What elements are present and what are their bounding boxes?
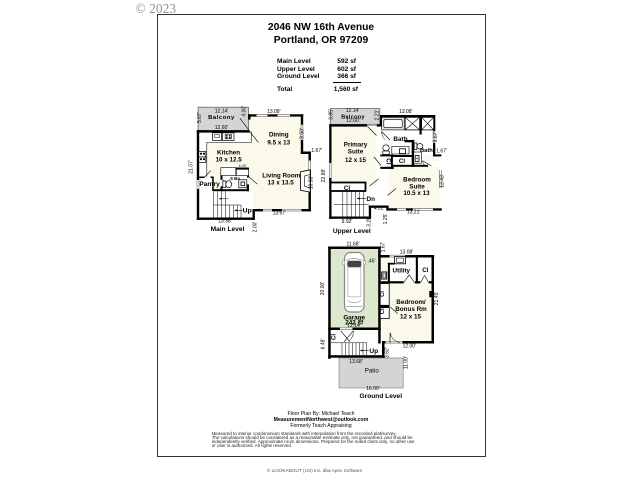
svg-text:Dn: Dn	[367, 196, 376, 203]
svg-text:Pantry: Pantry	[199, 181, 220, 188]
svg-text:Main Level: Main Level	[211, 226, 245, 233]
svg-text:2.21': 2.21'	[374, 110, 380, 121]
svg-text:1.25': 1.25'	[383, 214, 389, 225]
svg-text:12.60': 12.60'	[346, 118, 360, 124]
svg-text:13.08': 13.08'	[400, 249, 414, 255]
svg-text:11.00': 11.00'	[404, 356, 410, 369]
svg-text:Bedroom/: Bedroom/	[396, 299, 426, 306]
svg-text:13.98': 13.98'	[309, 176, 315, 190]
svg-text:1.67': 1.67'	[436, 148, 447, 154]
svg-text:1.67': 1.67'	[311, 148, 322, 154]
svg-text:12.14': 12.14'	[346, 108, 360, 114]
svg-text:Up: Up	[243, 207, 252, 214]
svg-text:Bedroom: Bedroom	[403, 176, 431, 183]
svg-text:13.43': 13.43'	[440, 174, 446, 188]
svg-text:13.58': 13.58'	[218, 219, 232, 225]
svg-text:Ground Level: Ground Level	[360, 393, 403, 400]
svg-text:Cl: Cl	[380, 308, 386, 314]
svg-text:4.22': 4.22'	[374, 205, 385, 211]
svg-text:Upper Level: Upper Level	[333, 228, 371, 235]
svg-text:Bath: Bath	[420, 148, 433, 154]
svg-text:4.00': 4.00'	[238, 164, 246, 168]
svg-text:3.25': 3.25'	[367, 216, 373, 227]
svg-text:Balcony: Balcony	[208, 115, 235, 121]
svg-text:10 x 12.5: 10 x 12.5	[215, 156, 242, 163]
svg-text:9.92': 9.92'	[342, 219, 353, 225]
svg-text:Dining: Dining	[269, 132, 289, 139]
svg-text:22.88': 22.88'	[321, 169, 327, 183]
svg-text:21.07': 21.07'	[189, 160, 195, 174]
svg-text:12 x 15: 12 x 15	[345, 157, 367, 164]
svg-text:Primary: Primary	[344, 142, 368, 149]
svg-text:Up: Up	[369, 348, 378, 355]
svg-text:Utility: Utility	[393, 268, 411, 275]
svg-text:3.62': 3.62'	[384, 347, 390, 358]
svg-text:13.08': 13.08'	[267, 109, 281, 115]
svg-text:Cl: Cl	[344, 185, 350, 192]
svg-text:11.68': 11.68'	[346, 241, 359, 247]
svg-text:Cl: Cl	[399, 158, 405, 165]
svg-text:Bonus Rm: Bonus Rm	[395, 306, 427, 313]
svg-text:9.50': 9.50'	[300, 128, 306, 139]
svg-text:6.48': 6.48'	[321, 339, 327, 350]
svg-text:13.68': 13.68'	[349, 359, 363, 365]
svg-text:13 x 13.5: 13 x 13.5	[267, 180, 294, 187]
svg-text:12 x 15: 12 x 15	[400, 314, 422, 321]
svg-text:Cl: Cl	[380, 291, 386, 297]
svg-text:Suite: Suite	[348, 149, 364, 156]
svg-text:.46': .46'	[368, 259, 376, 265]
svg-text:5.67': 5.67'	[197, 112, 203, 123]
svg-text:13.21': 13.21'	[407, 210, 421, 216]
svg-text:20.00': 20.00'	[320, 282, 326, 296]
svg-text:13.67': 13.67'	[273, 211, 287, 217]
svg-text:13.08': 13.08'	[399, 109, 413, 115]
svg-text:9.67': 9.67'	[433, 132, 439, 143]
svg-text:4.00': 4.00'	[241, 106, 247, 117]
svg-text:16.00': 16.00'	[366, 386, 380, 392]
svg-text:3.85': 3.85'	[328, 109, 334, 120]
svg-text:1.67': 1.67'	[381, 242, 387, 253]
svg-text:Cl: Cl	[332, 334, 338, 340]
svg-text:12.00': 12.00'	[403, 343, 417, 349]
svg-text:10.5 x 13: 10.5 x 13	[403, 190, 430, 197]
svg-text:.5 Ba: .5 Ba	[229, 176, 240, 181]
svg-text:Kitchen: Kitchen	[217, 149, 240, 156]
svg-text:Cl: Cl	[422, 267, 428, 274]
svg-text:21.45': 21.45'	[434, 292, 440, 306]
svg-text:Cl: Cl	[384, 158, 390, 164]
svg-text:Living Room: Living Room	[262, 172, 301, 179]
svg-text:9.5 x 13: 9.5 x 13	[267, 139, 290, 146]
svg-text:12.14': 12.14'	[215, 108, 229, 114]
svg-text:12.14': 12.14'	[347, 323, 361, 329]
svg-text:2.00': 2.00'	[253, 222, 259, 233]
svg-text:Patio: Patio	[365, 368, 380, 375]
